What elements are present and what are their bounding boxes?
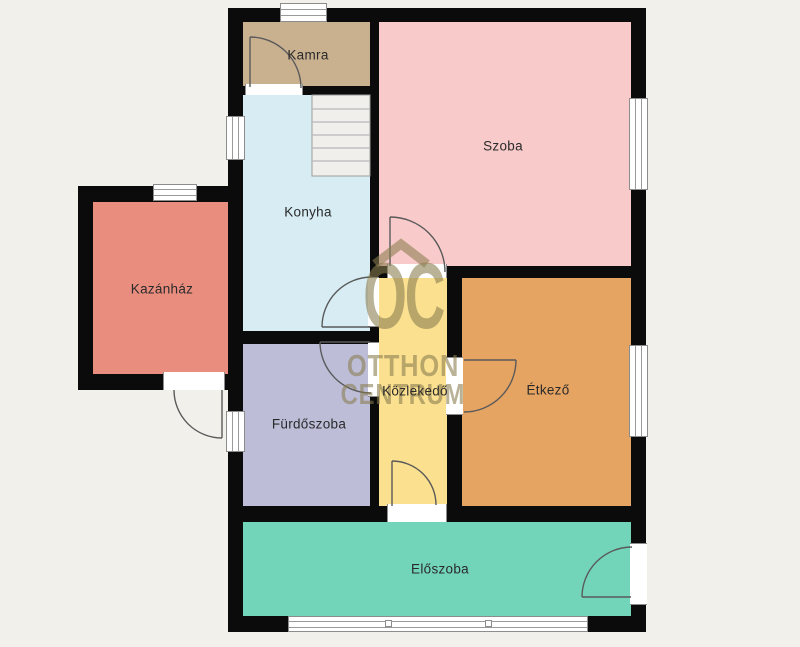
window-furdoszoba-left bbox=[226, 411, 245, 452]
door-opening-entrance bbox=[630, 543, 647, 605]
window-kamra-top bbox=[280, 3, 327, 22]
door-opening-kamra bbox=[245, 84, 303, 95]
window-etkezo-right bbox=[629, 345, 648, 437]
door-arc-kazanhaz bbox=[174, 390, 222, 438]
room-label-etkezo: Étkező bbox=[526, 383, 569, 398]
window-kazanhaz-top bbox=[153, 184, 197, 201]
floor-plan: OC OTTHON CENTRUM Kamra Szoba Konyha Kaz… bbox=[0, 0, 800, 647]
door-opening-kazanhaz bbox=[163, 372, 225, 390]
room-label-kamra: Kamra bbox=[287, 48, 328, 63]
window-mullion bbox=[485, 620, 492, 627]
room-label-kazanhaz: Kazánház bbox=[131, 282, 193, 297]
room-label-konyha: Konyha bbox=[284, 205, 332, 220]
window-mullion bbox=[385, 620, 392, 627]
wall-konyha-furdoszoba bbox=[243, 331, 379, 344]
room-label-kozlekedo: Közlekedő bbox=[382, 384, 448, 399]
window-szoba-right bbox=[629, 98, 648, 190]
door-opening-eloszoba bbox=[387, 504, 447, 522]
room-label-szoba: Szoba bbox=[483, 139, 523, 154]
room-label-eloszoba: Előszoba bbox=[411, 562, 469, 577]
wall-annex-left bbox=[78, 186, 93, 390]
window-konyha-left bbox=[226, 116, 245, 160]
window-eloszoba-bottom bbox=[288, 616, 588, 632]
wall-left bbox=[228, 8, 243, 632]
room-label-furdoszoba: Fürdőszoba bbox=[272, 417, 346, 432]
watermark-monogram: OC bbox=[363, 253, 443, 339]
